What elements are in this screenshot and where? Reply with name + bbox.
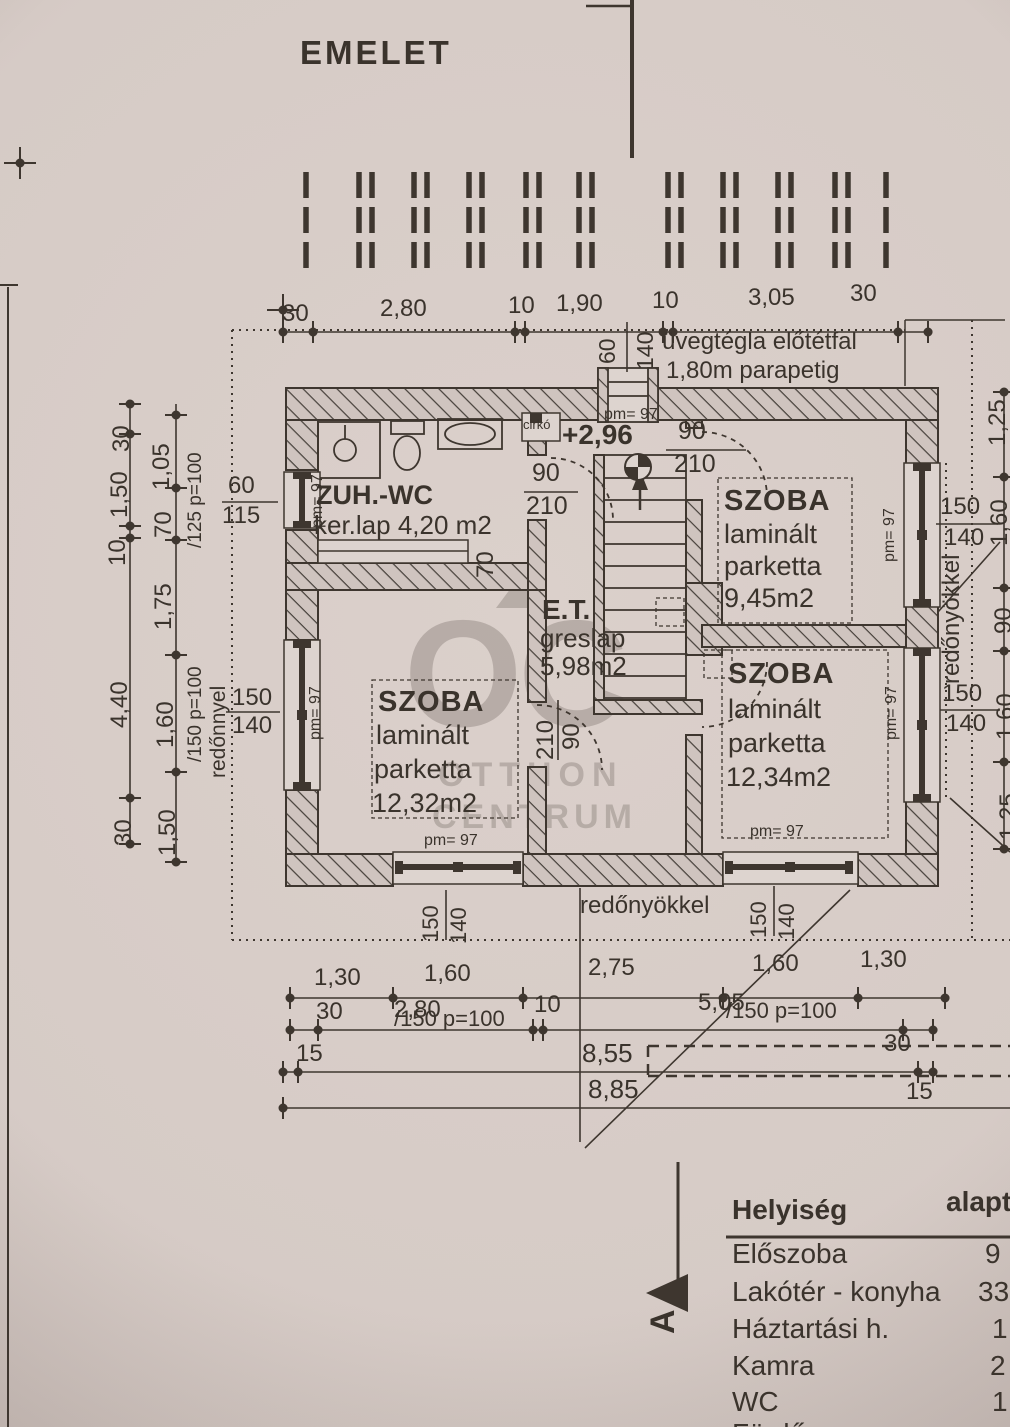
parapet-label-right-top: pm= 97 bbox=[882, 508, 898, 562]
dim-bl-win-150: 150 bbox=[420, 905, 442, 942]
floorplan-page: OC OTTHON CENTRUM bbox=[0, 0, 1010, 1427]
sink-icon bbox=[438, 419, 502, 449]
window-bottom-left bbox=[393, 852, 523, 884]
room-br-l1: laminált bbox=[728, 696, 821, 723]
dim-stair-window-60: 60 bbox=[596, 338, 619, 364]
room-et-area: 5,98m2 bbox=[540, 653, 627, 679]
dim-offset-right-15: 15 bbox=[906, 1080, 933, 1104]
dim-row2-2: 10 bbox=[534, 993, 561, 1017]
dim-row2-1: 2,80 bbox=[394, 998, 441, 1022]
dim-right-chain-0: 1,25 bbox=[986, 399, 1010, 446]
table-row-name: WC bbox=[732, 1388, 779, 1416]
room-l-name: SZOBA bbox=[378, 688, 485, 717]
dim-left-win-140: 140 bbox=[232, 714, 272, 738]
dim-row1-2: 2,75 bbox=[588, 956, 635, 980]
table-row-value: 9 bbox=[985, 1240, 1001, 1268]
table-row-value: 33 bbox=[978, 1278, 1009, 1306]
dim-left-outer-2: 10 bbox=[106, 539, 130, 566]
window-right-bottom bbox=[904, 648, 940, 802]
dim-right-chain-2: 90 bbox=[992, 607, 1010, 634]
dim-bl-win-140: 140 bbox=[448, 907, 470, 944]
dim-left-inner-0: 1,05 bbox=[150, 443, 174, 490]
dim-left-inner-1: 70 bbox=[152, 511, 176, 538]
room-tr-name: SZOBA bbox=[724, 487, 831, 516]
room-et-name: E.T. bbox=[542, 596, 590, 624]
dim-left-win-small-115: 115 bbox=[222, 504, 260, 528]
glass-wall-note-line2: 1,80m parapetig bbox=[666, 359, 839, 383]
room-tr-l1: laminált bbox=[724, 521, 817, 548]
table-row-name: Előszoba bbox=[732, 1240, 847, 1268]
dim-row1-4: 1,30 bbox=[860, 948, 907, 972]
room-tr-area: 9,45m2 bbox=[724, 585, 814, 612]
parapet-label-bottom-right-win: pm= 97 bbox=[750, 824, 804, 840]
dim-row2-4: 30 bbox=[884, 1032, 911, 1056]
note-p125-left: /125 p=100 bbox=[186, 452, 205, 548]
table-row-value: 1 bbox=[992, 1315, 1008, 1343]
parapet-label-left-win: pm= 97 bbox=[308, 686, 324, 740]
page-title: EMELET bbox=[300, 36, 452, 69]
dim-total-885: 8,85 bbox=[588, 1076, 639, 1102]
dim-left-inner-3: 1,60 bbox=[154, 701, 178, 748]
dim-br-win-140: 140 bbox=[776, 903, 798, 940]
dim-left-inner-2: 1,75 bbox=[152, 583, 176, 630]
door-tr-width: 90 bbox=[678, 419, 706, 444]
section-letter: A bbox=[646, 1309, 680, 1334]
table-row-value: 1 bbox=[992, 1388, 1008, 1416]
door-tr-height: 210 bbox=[674, 452, 716, 477]
dim-top-5: 3,05 bbox=[748, 286, 795, 310]
room-bath-name: ZUH.-WC bbox=[316, 482, 433, 509]
boiler-label: cirkó bbox=[523, 418, 550, 431]
level-label: +2,96 bbox=[562, 421, 633, 449]
table-row-value: 2 bbox=[990, 1352, 1006, 1380]
dim-left-inner-4: 1,50 bbox=[156, 809, 180, 856]
dim-left-outer-4: 30 bbox=[112, 819, 136, 846]
note-p150-left: /150 p=100 bbox=[186, 666, 205, 762]
dim-br-win-150: 150 bbox=[748, 901, 770, 938]
room-bath-detail: ker.lap 4,20 m2 bbox=[314, 512, 492, 538]
room-tr-l2: parketta bbox=[724, 553, 822, 580]
room-et-finish: greslap bbox=[540, 625, 625, 651]
dim-top-6: 30 bbox=[850, 282, 877, 306]
dim-right-win-top-150: 150 bbox=[940, 495, 980, 519]
dim-right-chain-4: 1,25 bbox=[997, 793, 1010, 840]
dim-top-2: 10 bbox=[508, 294, 535, 318]
dim-top-0: 30 bbox=[282, 302, 309, 326]
note-redonnyel-left: redőnnyel bbox=[208, 686, 229, 778]
window-right-top bbox=[904, 463, 940, 607]
roof-corner-line bbox=[905, 320, 1005, 386]
dim-row1-3: 1,60 bbox=[752, 952, 799, 976]
dim-left-outer-1: 1,50 bbox=[108, 471, 132, 518]
room-br-area: 12,34m2 bbox=[726, 764, 831, 791]
dim-left-win-150: 150 bbox=[232, 686, 272, 710]
dim-right-win-bottom-150: 150 bbox=[942, 682, 982, 706]
dim-total-855: 8,55 bbox=[582, 1040, 633, 1066]
table-header-room: Helyiség bbox=[732, 1196, 847, 1224]
table-row-name: Kamra bbox=[732, 1352, 814, 1380]
room-l-area: 12,32m2 bbox=[372, 790, 477, 817]
parapet-label-bath: pm= 97 bbox=[310, 474, 326, 528]
dim-offset-left-15: 15 bbox=[296, 1042, 323, 1066]
note-redonyokkel-bottom: redőnyökkel bbox=[580, 894, 709, 918]
dim-right-chain-3: 1,60 bbox=[994, 693, 1010, 740]
parapet-label-bottom-left-win: pm= 97 bbox=[424, 833, 478, 849]
dim-row2-3: 5,05 bbox=[698, 991, 745, 1015]
builtin-band bbox=[318, 540, 468, 563]
parapet-label-right-bottom: pm= 97 bbox=[884, 686, 900, 740]
dim-right-chain-1: 1,60 bbox=[988, 499, 1010, 546]
toilet-icon bbox=[391, 421, 424, 470]
room-l-l2: parketta bbox=[374, 756, 472, 783]
dim-left-win-small-60: 60 bbox=[228, 474, 255, 498]
dim-left-outer-3: 4,40 bbox=[108, 681, 132, 728]
dim-row1-0: 1,30 bbox=[314, 966, 361, 990]
table-header-area: alapt bbox=[946, 1188, 1010, 1216]
room-br-l2: parketta bbox=[728, 730, 826, 757]
room-br-name: SZOBA bbox=[728, 660, 835, 689]
dim-right-win-top-140: 140 bbox=[944, 526, 984, 550]
window-bottom-right bbox=[723, 852, 858, 884]
table-row-name: Háztartási h. bbox=[732, 1315, 889, 1343]
note-redonyokkel-right: redőnyökkel bbox=[940, 555, 964, 684]
hatch-marks bbox=[306, 172, 886, 268]
section-marker bbox=[646, 1162, 688, 1312]
dim-wall-nib: 70 bbox=[474, 551, 498, 578]
dim-top-1: 2,80 bbox=[380, 297, 427, 321]
dim-left-outer-0: 30 bbox=[110, 425, 134, 452]
glass-wall-note-line1: üvegtégla előtétfal bbox=[662, 330, 857, 354]
room-l-l1: laminált bbox=[376, 722, 469, 749]
dim-row2-0: 30 bbox=[316, 1000, 343, 1024]
dim-stair-window-140: 140 bbox=[634, 332, 657, 370]
table-row-name: Lakótér - konyha bbox=[732, 1278, 941, 1306]
door-left-width: 90 bbox=[560, 723, 584, 750]
dim-right-win-bottom-140: 140 bbox=[946, 712, 986, 736]
dim-top-3: 1,90 bbox=[556, 292, 603, 316]
level-marker-icon bbox=[625, 454, 651, 480]
door-bath-width: 90 bbox=[532, 461, 560, 486]
shower-icon bbox=[318, 422, 380, 478]
door-bath-height: 210 bbox=[526, 494, 568, 519]
dim-top-4: 10 bbox=[652, 289, 679, 313]
dim-row1-1: 1,60 bbox=[424, 962, 471, 986]
door-left-height: 210 bbox=[534, 720, 558, 760]
table-row-name: Fürdő bbox=[732, 1420, 805, 1427]
